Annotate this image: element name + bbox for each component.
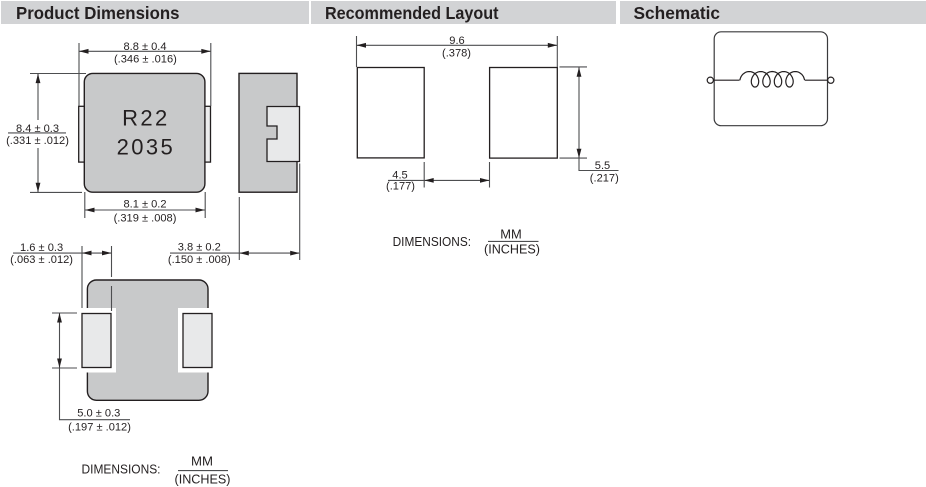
svg-text:(INCHES): (INCHES) [484,243,540,257]
svg-text:8.1 ± 0.2: 8.1 ± 0.2 [123,199,166,211]
svg-text:DIMENSIONS:: DIMENSIONS: [393,235,472,249]
svg-text:R22: R22 [122,106,170,131]
svg-text:(.063 ± .012): (.063 ± .012) [10,254,73,266]
svg-text:5.0 ± 0.3: 5.0 ± 0.3 [77,408,120,420]
svg-text:(.346 ± .016): (.346 ± .016) [114,53,177,65]
svg-text:Schematic: Schematic [634,3,721,23]
svg-text:(.378): (.378) [442,48,471,60]
svg-text:(.319 ± .008): (.319 ± .008) [114,213,177,225]
svg-text:(.217): (.217) [590,172,619,184]
svg-text:5.5: 5.5 [595,160,610,172]
svg-text:(.197 ± .012): (.197 ± .012) [68,422,131,434]
svg-text:Recommended Layout: Recommended Layout [325,3,499,23]
svg-text:(.331 ± .012): (.331 ± .012) [6,135,69,147]
svg-text:DIMENSIONS:: DIMENSIONS: [82,463,161,477]
svg-text:(INCHES): (INCHES) [175,473,231,487]
svg-text:1.6 ± 0.3: 1.6 ± 0.3 [20,242,63,254]
svg-text:2035: 2035 [117,135,176,160]
svg-text:3.8 ± 0.2: 3.8 ± 0.2 [178,242,221,254]
svg-text:9.6: 9.6 [449,35,464,47]
svg-text:(.177): (.177) [386,181,415,193]
svg-text:8.8 ± 0.4: 8.8 ± 0.4 [123,41,166,53]
svg-text:(.150 ± .008): (.150 ± .008) [168,254,231,266]
svg-text:8.4 ± 0.3: 8.4 ± 0.3 [16,123,59,135]
svg-text:MM: MM [191,455,213,469]
svg-text:MM: MM [500,228,522,242]
svg-text:Product Dimensions: Product Dimensions [16,3,180,23]
